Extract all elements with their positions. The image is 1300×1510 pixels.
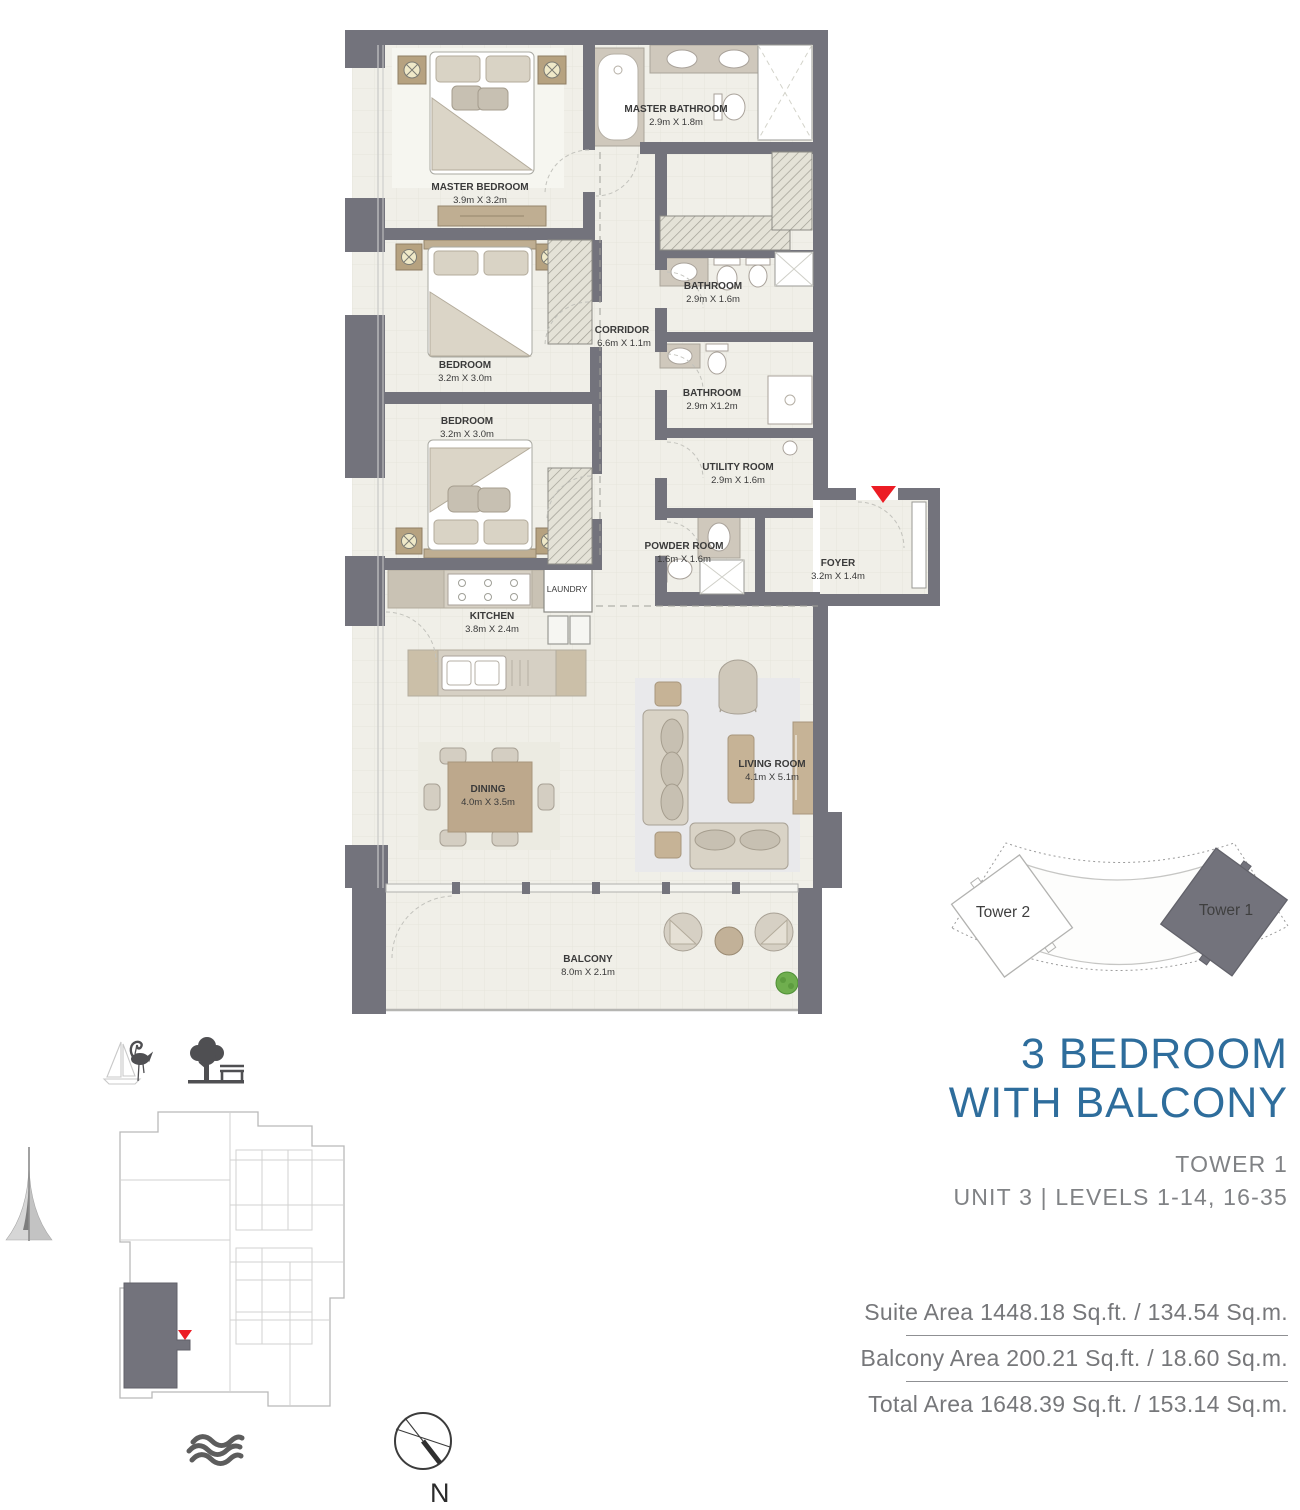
unit-levels: UNIT 3 | LEVELS 1-14, 16-35 — [953, 1181, 1288, 1214]
page-title: 3 BEDROOM WITH BALCONY — [949, 1030, 1288, 1127]
room-dims: 2.9m X 1.6m — [711, 475, 765, 486]
tower-2-label: Tower 2 — [976, 904, 1030, 921]
tower-1-label: Tower 1 — [1199, 902, 1253, 919]
laundry-closet — [544, 566, 592, 644]
room-name: LIVING ROOM — [738, 759, 805, 770]
flamingo-sailboat-icon — [95, 1035, 175, 1090]
room-name: MASTER BATHROOM — [624, 104, 727, 115]
utility-fixture — [783, 441, 797, 455]
room-dims: 2.9m X 1.8m — [649, 117, 703, 128]
room-name: BALCONY — [563, 954, 613, 965]
room-dims: 2.9m X 1.6m — [686, 294, 740, 305]
total-area-row: Total Area 1648.39 Sq.ft. / 153.14 Sq.m. — [828, 1382, 1288, 1427]
unit-tower: TOWER 1 — [953, 1148, 1288, 1181]
title-line-1: 3 BEDROOM — [949, 1030, 1288, 1079]
room-name: BATHROOM — [684, 281, 742, 292]
room-name: UTILITY ROOM — [702, 462, 773, 473]
room-name: BEDROOM — [439, 360, 491, 371]
waves-icon — [180, 1425, 255, 1475]
room-dims: 2.9m X1.2m — [686, 401, 737, 412]
room-dims: 1.6m X 1.6m — [657, 554, 711, 565]
unit-key-plan — [90, 1100, 360, 1420]
room-dims: 3.2m X 3.0m — [440, 429, 494, 440]
room-name: KITCHEN — [470, 611, 514, 622]
room-dims: 3.8m X 2.4m — [465, 624, 519, 635]
suite-area-row: Suite Area 1448.18 Sq.ft. / 134.54 Sq.m. — [828, 1290, 1288, 1335]
room-dims: 6.6m X 1.1m — [597, 338, 651, 349]
area-summary: Suite Area 1448.18 Sq.ft. / 134.54 Sq.m.… — [828, 1290, 1288, 1427]
room-name: BEDROOM — [441, 416, 493, 427]
room-name: LAUNDRY — [547, 584, 588, 594]
room-name: CORRIDOR — [595, 325, 650, 336]
compass-icon — [380, 1395, 470, 1510]
room-name: BATHROOM — [683, 388, 741, 399]
room-name: DINING — [471, 784, 506, 795]
room-dims: 4.0m X 3.5m — [461, 797, 515, 808]
room-dims: 3.2m X 1.4m — [811, 571, 865, 582]
unit-info: TOWER 1 UNIT 3 | LEVELS 1-14, 16-35 — [953, 1148, 1288, 1215]
room-dims: 4.1m X 5.1m — [745, 772, 799, 783]
room-name: POWDER ROOM — [645, 541, 724, 552]
site-plan: Tower 2 Tower 1 — [940, 830, 1300, 1030]
compass-north-label: N — [430, 1478, 450, 1509]
room-label-laundry: LAUNDRY — [547, 584, 588, 594]
room-dims: 3.9m X 3.2m — [453, 195, 507, 206]
room-name: FOYER — [821, 558, 856, 569]
floorplan-page: MASTER BEDROOM 3.9m X 3.2m MASTER BATHRO… — [0, 0, 1300, 1510]
room-dims: 3.2m X 3.0m — [438, 373, 492, 384]
tree-bench-icon — [180, 1035, 255, 1090]
tower-spire-icon — [0, 1140, 80, 1250]
room-name: MASTER BEDROOM — [431, 182, 528, 193]
floorplan-drawing: MASTER BEDROOM 3.9m X 3.2m MASTER BATHRO… — [340, 20, 950, 1020]
balcony-area-row: Balcony Area 200.21 Sq.ft. / 18.60 Sq.m. — [828, 1336, 1288, 1381]
room-dims: 8.0m X 2.1m — [561, 967, 615, 978]
title-line-2: WITH BALCONY — [949, 1079, 1288, 1128]
